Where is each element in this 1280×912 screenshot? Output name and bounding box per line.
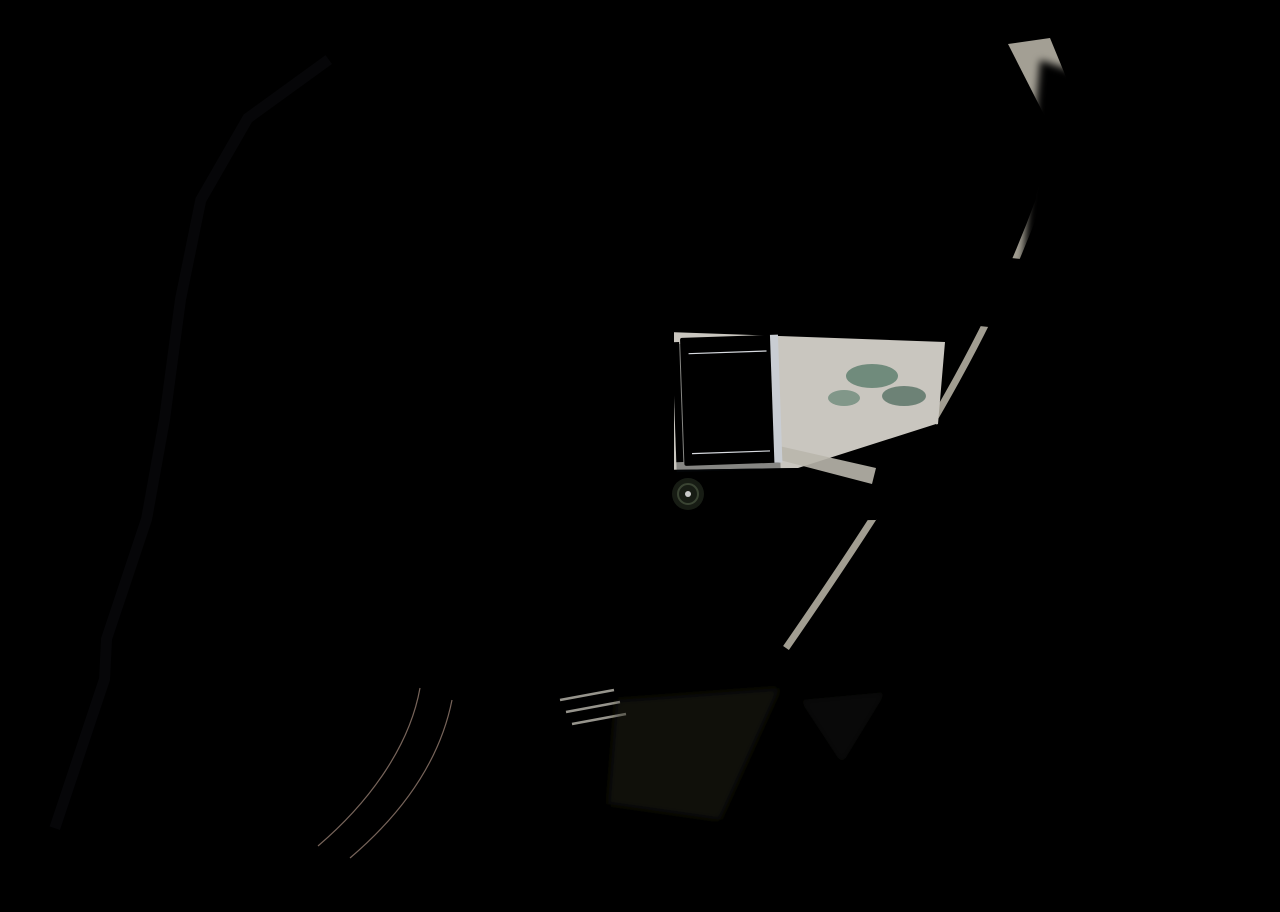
gazebo-table <box>685 491 691 497</box>
clubhouse-roof <box>680 335 780 466</box>
palm-reflection <box>828 390 860 406</box>
aerial-render-stage <box>0 0 1280 912</box>
villa-development-aerial-render <box>0 0 1280 912</box>
clubhouse <box>672 335 783 473</box>
palm-reflection <box>882 386 926 406</box>
lawn-patch <box>350 98 436 146</box>
rock-shadow <box>910 726 1050 794</box>
gazebo <box>672 478 704 510</box>
palm-reflection <box>846 364 898 388</box>
service-strip <box>648 330 674 478</box>
